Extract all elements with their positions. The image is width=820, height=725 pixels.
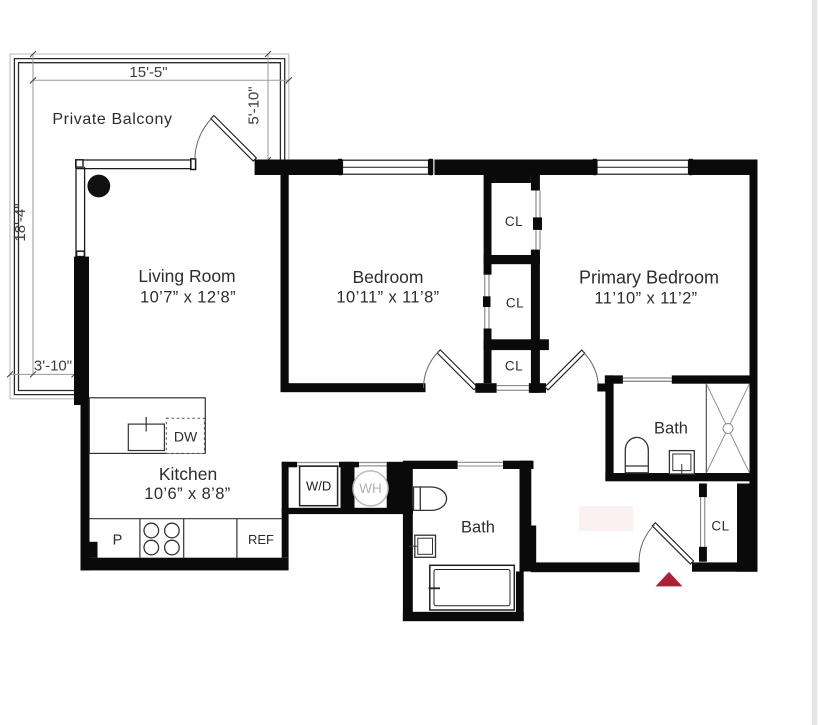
svg-text:WH: WH <box>359 481 382 496</box>
svg-text:Private Balcony: Private Balcony <box>52 111 172 128</box>
svg-text:Bath: Bath <box>654 420 688 438</box>
svg-text:Bedroom: Bedroom <box>352 267 423 287</box>
svg-text:Primary Bedroom: Primary Bedroom <box>579 268 719 288</box>
svg-text:3'-10": 3'-10" <box>34 358 72 375</box>
svg-text:REF: REF <box>248 532 274 547</box>
svg-text:W/D: W/D <box>306 479 331 494</box>
svg-text:Bath: Bath <box>461 519 495 537</box>
svg-text:10’7” x 12’8”: 10’7” x 12’8” <box>140 289 236 307</box>
svg-text:Kitchen: Kitchen <box>159 464 217 484</box>
svg-text:11’10” x 11’2”: 11’10” x 11’2” <box>594 290 697 308</box>
svg-text:15'-5": 15'-5" <box>129 64 167 81</box>
svg-text:5'-10": 5'-10" <box>246 86 263 124</box>
svg-text:CL: CL <box>506 296 524 311</box>
svg-text:P: P <box>113 533 123 549</box>
svg-text:10’11” x 11’8”: 10’11” x 11’8” <box>336 288 439 306</box>
svg-text:18'-4": 18'-4" <box>12 203 29 241</box>
svg-text:DW: DW <box>174 429 198 445</box>
svg-text:CL: CL <box>505 214 523 229</box>
svg-text:Living Room: Living Room <box>138 266 235 286</box>
svg-text:CL: CL <box>505 359 523 374</box>
svg-text:10’6” x 8’8”: 10’6” x 8’8” <box>144 485 230 503</box>
svg-text:CL: CL <box>711 519 729 534</box>
